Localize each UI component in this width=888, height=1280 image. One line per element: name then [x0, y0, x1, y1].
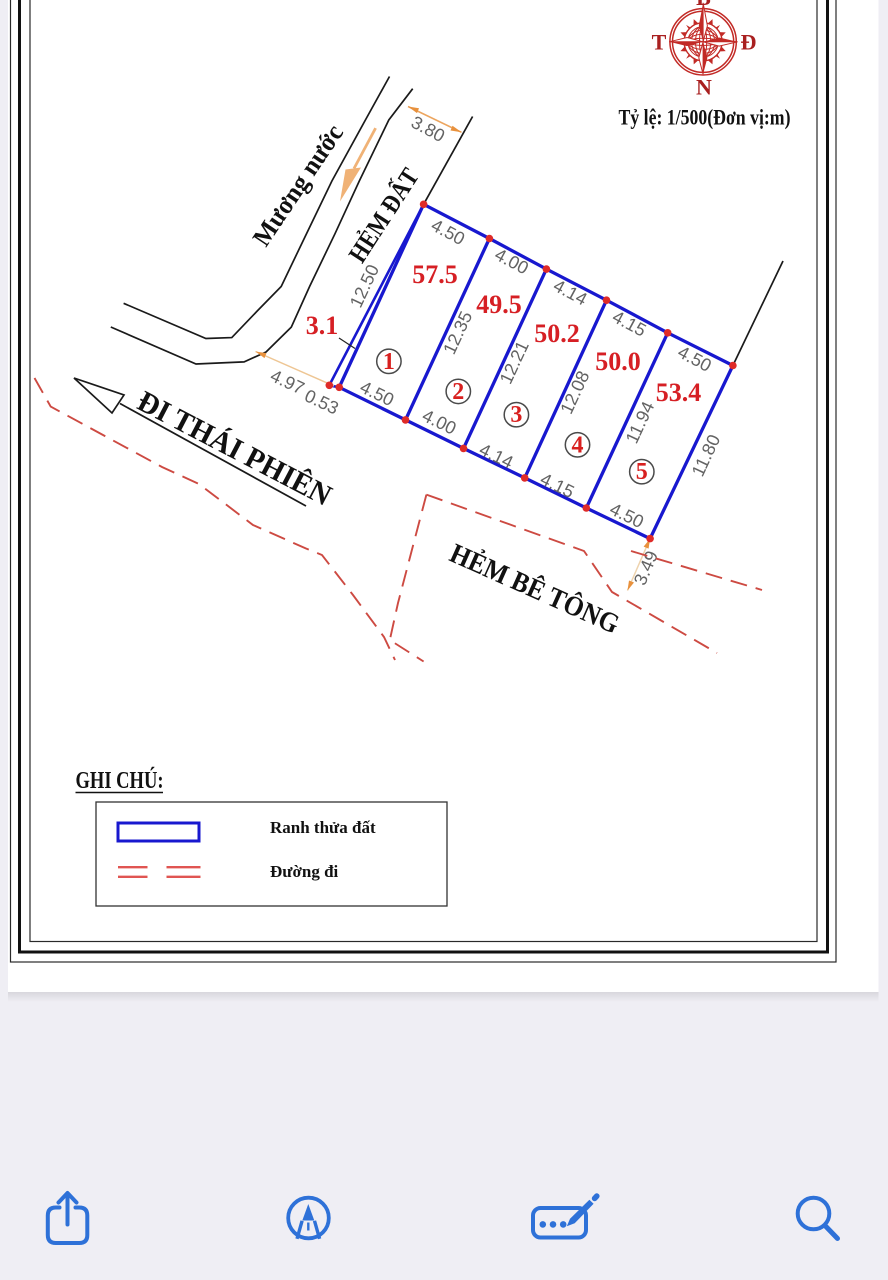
svg-text:3.1: 3.1: [306, 311, 339, 340]
svg-text:4: 4: [572, 432, 584, 458]
svg-text:1: 1: [383, 349, 395, 375]
svg-text:50.0: 50.0: [595, 347, 641, 376]
svg-text:Ranh thửa đất: Ranh thửa đất: [270, 818, 376, 837]
svg-text:B: B: [696, 0, 711, 10]
svg-text:N: N: [696, 75, 712, 100]
svg-text:2: 2: [452, 379, 464, 405]
svg-text:Đường đi: Đường đi: [270, 862, 339, 881]
svg-text:50.2: 50.2: [534, 319, 580, 348]
svg-text:53.4: 53.4: [656, 378, 702, 407]
svg-text:Đ: Đ: [741, 30, 757, 55]
svg-text:GHI CHÚ:: GHI CHÚ:: [76, 768, 164, 794]
svg-text:57.5: 57.5: [412, 260, 458, 289]
svg-text:T: T: [652, 30, 667, 55]
svg-text:Tỷ lệ: 1/500(Đơn vị:m): Tỷ lệ: 1/500(Đơn vị:m): [619, 105, 791, 130]
svg-text:3: 3: [510, 402, 522, 428]
svg-text:49.5: 49.5: [476, 290, 522, 319]
svg-text:5: 5: [636, 459, 648, 485]
